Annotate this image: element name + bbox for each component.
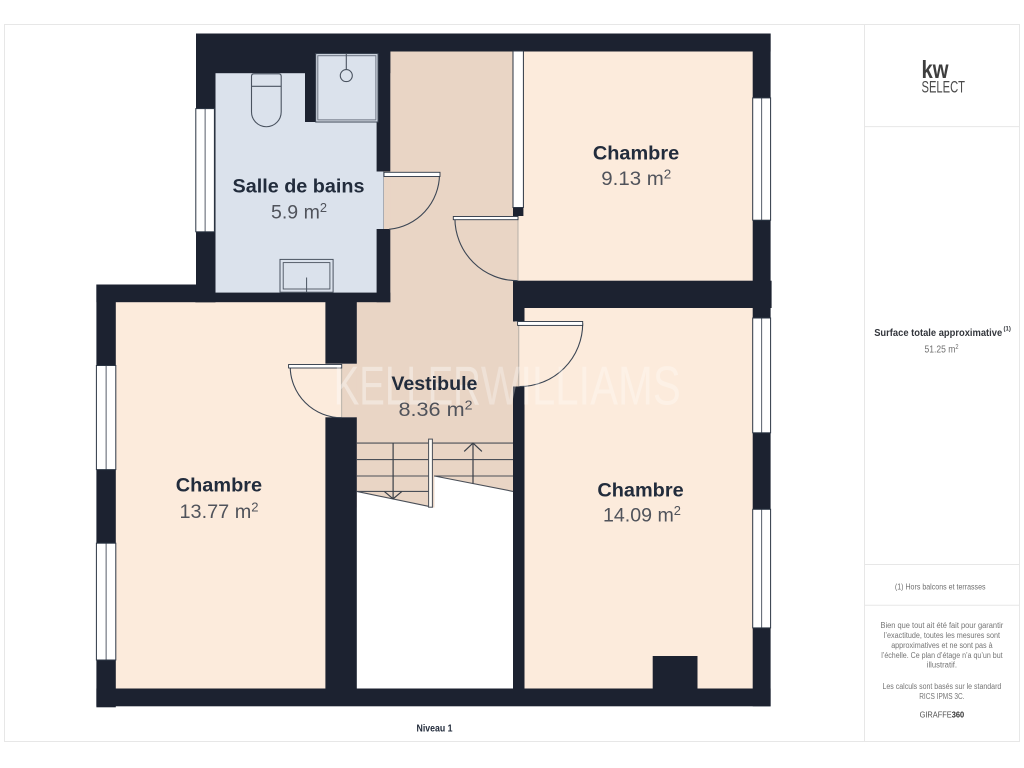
svg-text:WILLIAMS: WILLIAMS bbox=[481, 354, 681, 416]
svg-text:Les calculs sont basés sur le: Les calculs sont basés sur le standard bbox=[883, 682, 1002, 691]
svg-text:Bien que tout ait été fait pou: Bien que tout ait été fait pour garantir bbox=[881, 621, 1004, 630]
svg-text:illustratif.: illustratif. bbox=[927, 661, 957, 670]
svg-text:14.09 m2: 14.09 m2 bbox=[603, 504, 681, 527]
svg-text:(1): (1) bbox=[1004, 327, 1011, 333]
svg-text:Chambre: Chambre bbox=[597, 481, 683, 502]
svg-text:Salle de bains: Salle de bains bbox=[233, 176, 365, 197]
svg-text:51.25 m2: 51.25 m2 bbox=[925, 344, 959, 356]
svg-text:8.36 m2: 8.36 m2 bbox=[399, 399, 473, 422]
svg-text:Vestibule: Vestibule bbox=[391, 374, 477, 395]
svg-text:Niveau 1: Niveau 1 bbox=[417, 723, 453, 735]
svg-text:RICS IPMS 3C.: RICS IPMS 3C. bbox=[919, 692, 964, 701]
svg-text:Chambre: Chambre bbox=[593, 144, 679, 165]
svg-text:5.9 m2: 5.9 m2 bbox=[271, 201, 327, 224]
svg-text:Surface totale approximative: Surface totale approximative bbox=[874, 327, 1002, 339]
svg-text:SELECT: SELECT bbox=[922, 78, 966, 96]
svg-text:l’exactitude, toutes les mesur: l’exactitude, toutes les mesures sont bbox=[884, 631, 1001, 640]
svg-text:GIRAFFE360: GIRAFFE360 bbox=[920, 710, 965, 720]
svg-text:approximatives et ne sont pas: approximatives et ne sont pas à bbox=[891, 641, 993, 650]
svg-text:l’échelle. Ce plan d’étage n’a: l’échelle. Ce plan d’étage n’a qu’un but bbox=[881, 651, 1003, 660]
svg-text:(1) Hors balcons et terrasses: (1) Hors balcons et terrasses bbox=[895, 581, 986, 591]
svg-text:Chambre: Chambre bbox=[176, 476, 262, 497]
svg-text:9.13 m2: 9.13 m2 bbox=[601, 168, 671, 191]
svg-text:13.77 m2: 13.77 m2 bbox=[180, 501, 259, 524]
